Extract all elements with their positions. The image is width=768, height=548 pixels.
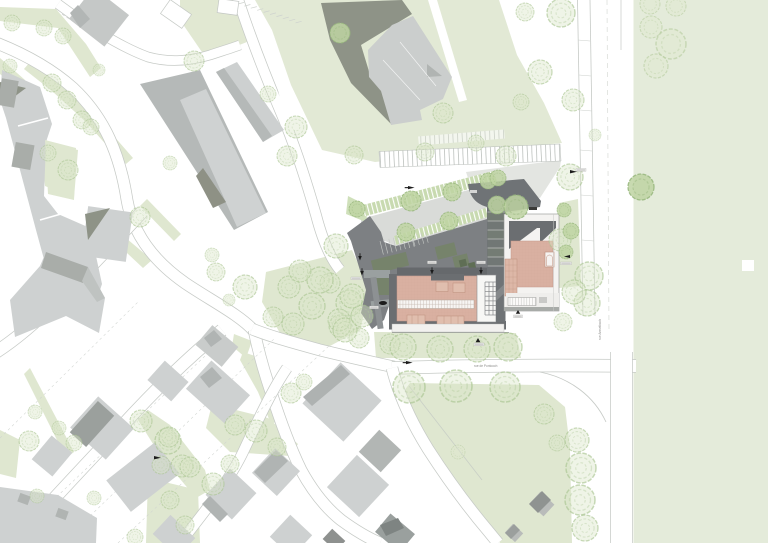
svg-text:rue de Pontooch: rue de Pontooch — [474, 364, 498, 368]
svg-text:rue Amselbach: rue Amselbach — [598, 319, 602, 340]
